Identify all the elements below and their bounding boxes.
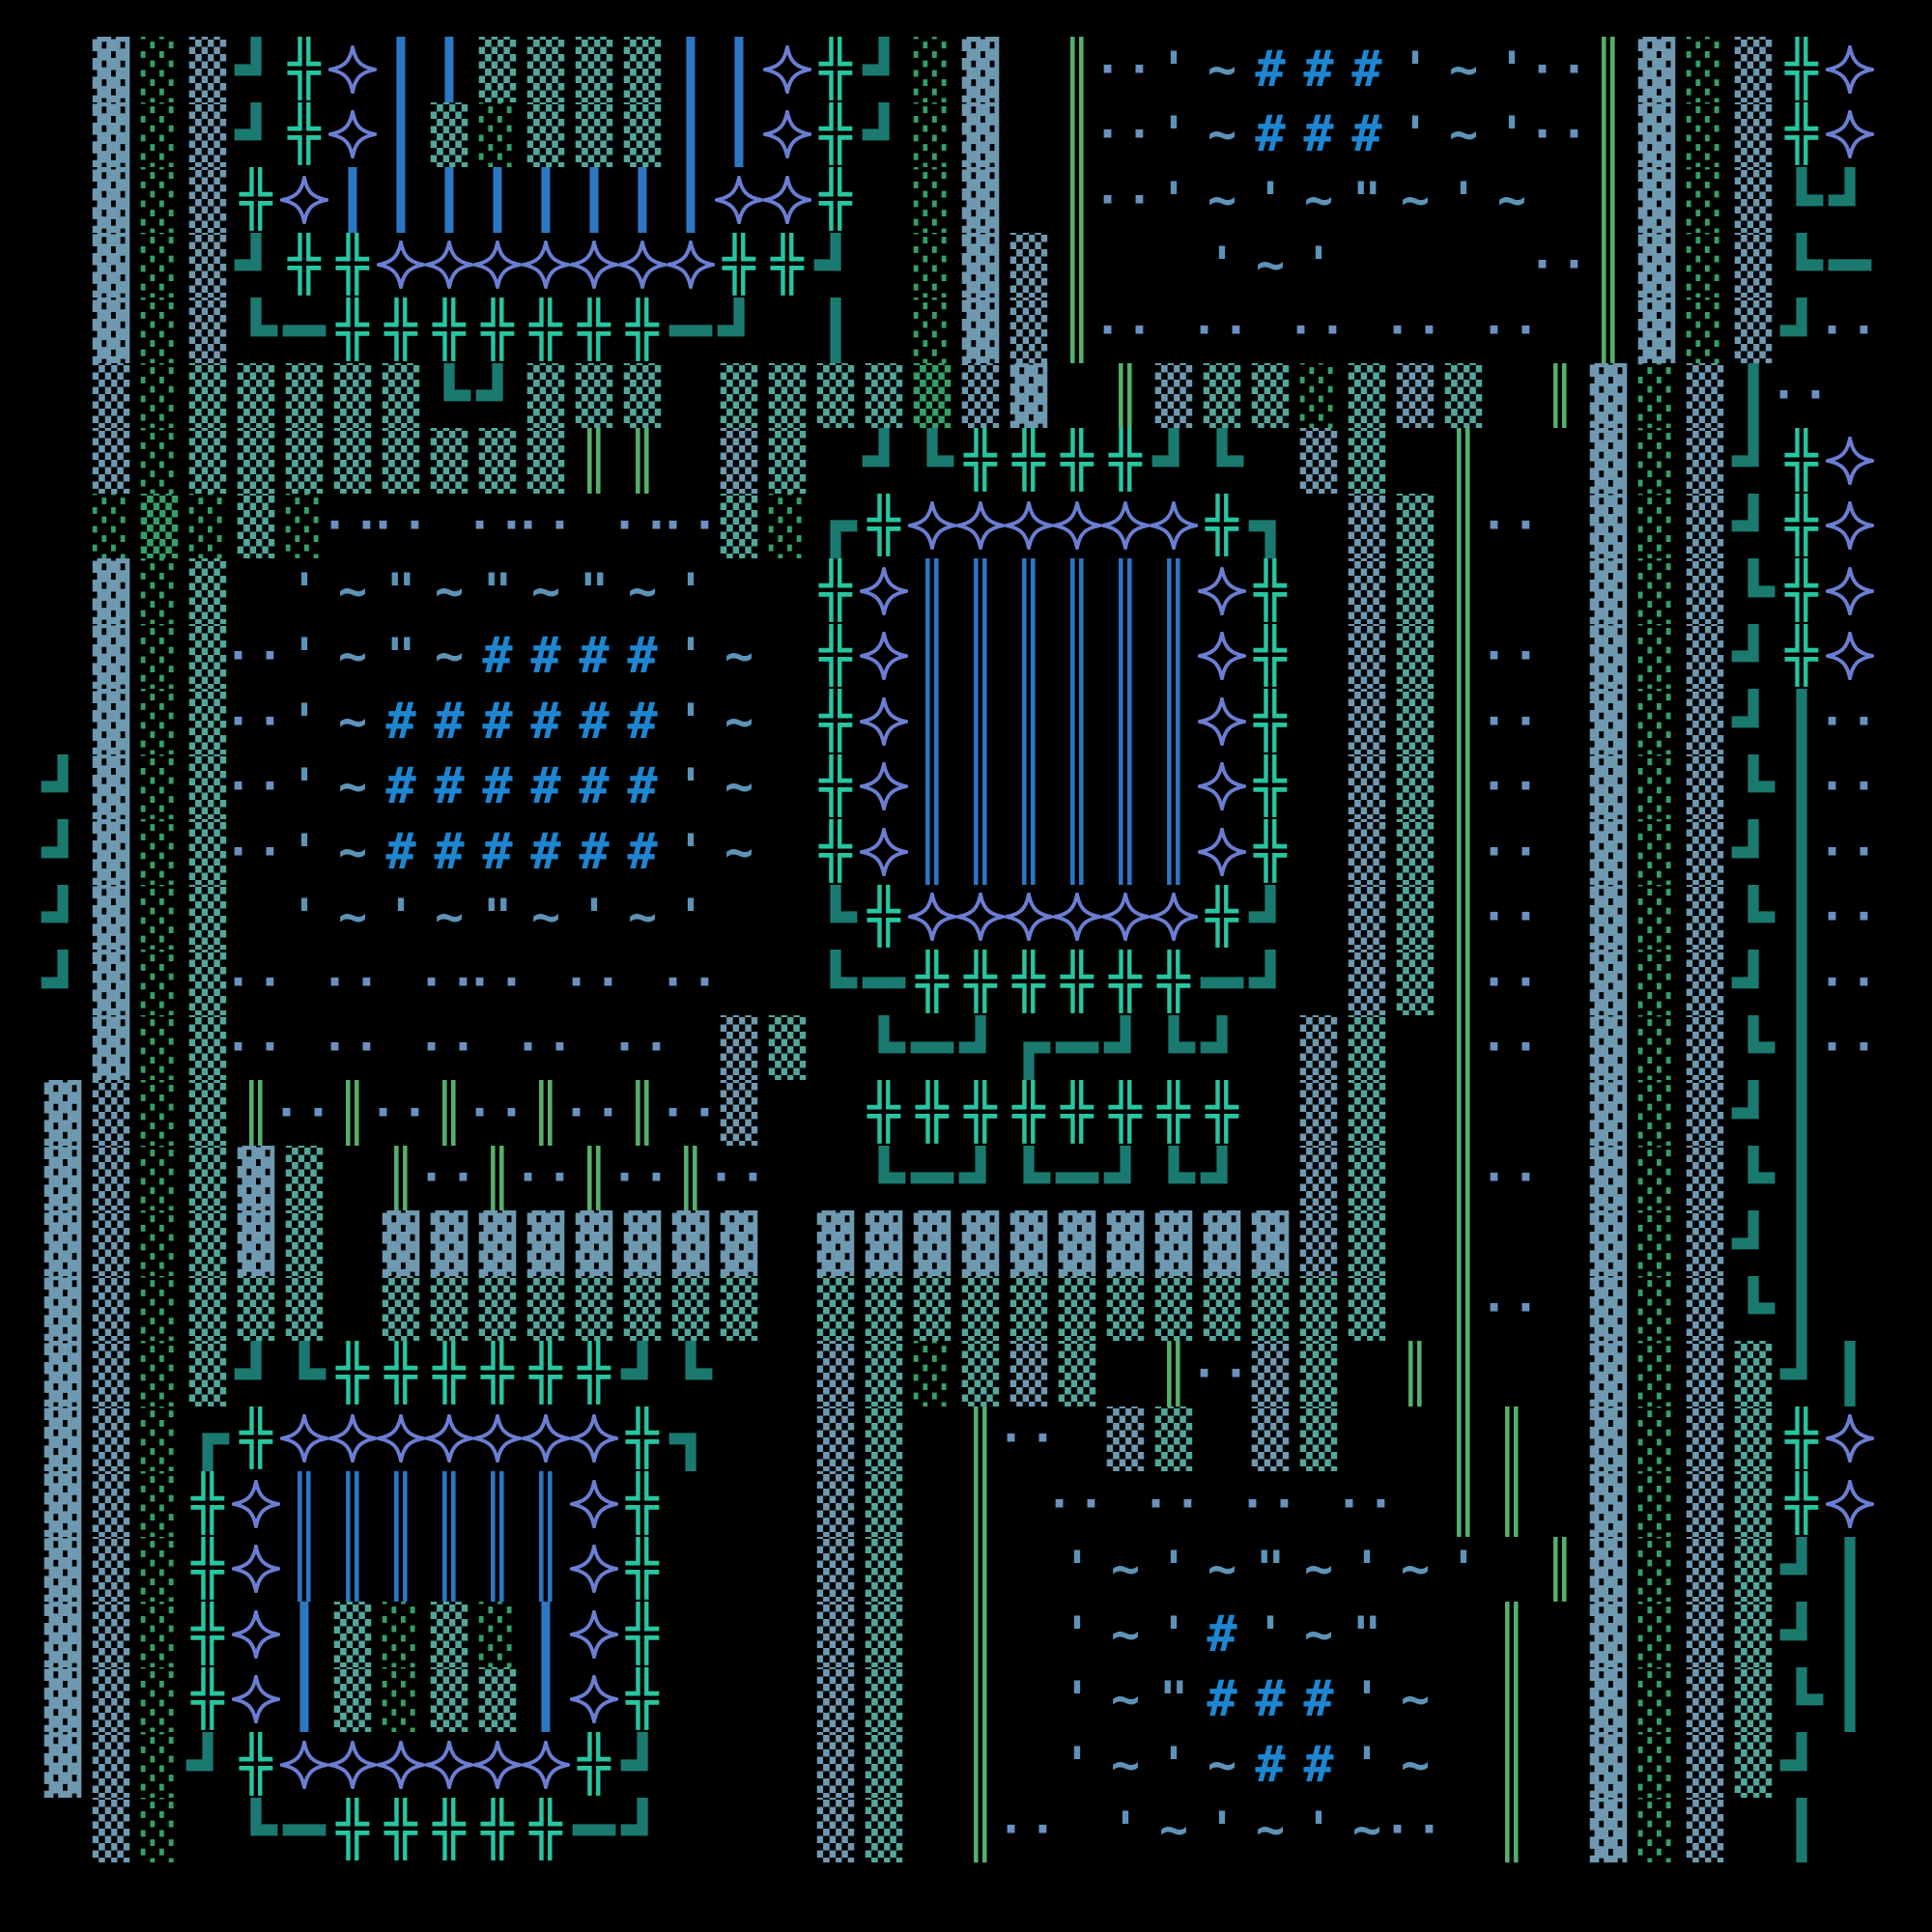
bar-blue: ┃ xyxy=(667,102,715,168)
tilde-glyph: ~ xyxy=(1198,1732,1246,1798)
apostrophe-glyph: ' xyxy=(667,885,715,951)
shade-medium-steel: ▒ xyxy=(1391,363,1439,429)
shade-medium-steel: ▒ xyxy=(1343,754,1391,820)
double-bar-green: ║ xyxy=(1101,363,1150,429)
shade-medium-teal: ▒ xyxy=(860,363,908,429)
shade-dense-steel: ▓ xyxy=(1633,37,1681,102)
cross-icon: ╬ xyxy=(618,298,667,363)
shade-medium-steel: ▒ xyxy=(1343,885,1391,951)
hash-glyph: # xyxy=(425,689,473,754)
empty-cell xyxy=(763,1210,811,1276)
double-bar-green: ║ xyxy=(522,1080,570,1146)
shade-medium-teal: ▒ xyxy=(1391,885,1439,951)
sparkle-icon xyxy=(763,37,811,102)
tilde-glyph: ~ xyxy=(1391,1537,1439,1603)
shade-dense-steel: ▓ xyxy=(570,1210,618,1276)
sparkle-icon xyxy=(473,1732,522,1798)
tilde-glyph: ~ xyxy=(522,558,570,624)
dot-pair-glyph: ·· xyxy=(425,1015,473,1081)
empty-cell xyxy=(763,1471,811,1537)
shade-medium-steel: ▒ xyxy=(1005,233,1053,298)
double-bar-blue: ║ xyxy=(522,1537,570,1603)
shade-dense-steel: ▓ xyxy=(956,1210,1005,1276)
corner-bottom-right-icon: ┛ xyxy=(618,1341,667,1406)
shade-medium-teal: ▒ xyxy=(860,1798,908,1863)
sparkle-icon xyxy=(956,885,1005,951)
cross-icon: ╬ xyxy=(1053,428,1101,494)
empty-cell xyxy=(1294,689,1343,754)
shade-medium-teal: ▒ xyxy=(860,1732,908,1798)
empty-cell xyxy=(1005,102,1053,168)
empty-cell xyxy=(1826,1732,1874,1798)
shade-medium-teal: ▒ xyxy=(1246,1276,1294,1342)
cross-icon: ╬ xyxy=(1053,1080,1101,1146)
cross-icon: ╬ xyxy=(522,1798,570,1863)
shade-medium-steel: ▒ xyxy=(87,1276,135,1342)
corner-bottom-right-icon: ┛ xyxy=(1729,1210,1777,1276)
shade-medium-teal: ▒ xyxy=(811,1276,860,1342)
apostrophe-glyph: ' xyxy=(1053,1537,1101,1603)
dot-pair-glyph: ·· xyxy=(1536,233,1584,298)
sparkle-icon xyxy=(377,1732,425,1798)
cross-icon: ╬ xyxy=(1198,1080,1246,1146)
shade-light-green: ░ xyxy=(1633,1667,1681,1733)
dot-pair-glyph: ·· xyxy=(1826,754,1874,820)
empty-cell xyxy=(328,1146,377,1211)
empty-cell xyxy=(1536,298,1584,363)
corner-bottom-right-icon: ┛ xyxy=(1729,624,1777,690)
shade-medium-teal: ▒ xyxy=(715,363,763,429)
tilde-glyph: ~ xyxy=(328,624,377,690)
shade-medium-teal: ▒ xyxy=(328,1602,377,1667)
bar-blue: ┃ xyxy=(425,37,473,102)
dot-pair-glyph: ·· xyxy=(232,819,280,885)
dot-pair-glyph: ·· xyxy=(232,950,280,1015)
shade-dense-steel: ▓ xyxy=(1584,1276,1633,1342)
double-bar-green: ║ xyxy=(1439,428,1488,494)
shade-medium-teal: ▒ xyxy=(425,1276,473,1342)
shade-medium-teal: ▒ xyxy=(1053,1341,1101,1406)
shade-dense-steel: ▓ xyxy=(1584,885,1633,951)
empty-cell xyxy=(763,689,811,754)
empty-cell xyxy=(860,233,908,298)
shade-medium-steel: ▒ xyxy=(1343,819,1391,885)
ascii-art-canvas: ▓░▒┛╬ ┃┃▒▒▒▒┃┃ ╬┛░▓║··'~###'~'··║▓░▒╬ ▓░… xyxy=(0,0,1932,1932)
sparkle-icon xyxy=(1826,37,1874,102)
dot-pair-glyph: ·· xyxy=(425,950,473,1015)
shade-medium-steel: ▒ xyxy=(1681,1406,1729,1472)
double-bar-green: ║ xyxy=(1439,1471,1488,1537)
corner-bottom-right-icon: ┛ xyxy=(39,819,87,885)
empty-cell xyxy=(1826,1210,1874,1276)
shade-dense-steel: ▓ xyxy=(1584,1406,1633,1472)
shade-medium-teal: ▒ xyxy=(715,1276,763,1342)
empty-cell xyxy=(763,1341,811,1406)
sparkle-icon xyxy=(232,1537,280,1603)
empty-cell xyxy=(1536,885,1584,951)
corner-bottom-right-icon: ┛ xyxy=(1729,494,1777,559)
corner-bottom-right-icon: ┛ xyxy=(232,37,280,102)
empty-cell xyxy=(667,428,715,494)
cross-icon: ╬ xyxy=(1777,494,1826,559)
cross-icon: ╬ xyxy=(908,1080,956,1146)
shade-dense-steel: ▓ xyxy=(87,233,135,298)
shade-medium-steel: ▒ xyxy=(1294,1210,1343,1276)
shade-medium-teal: ▒ xyxy=(1391,689,1439,754)
quote-glyph: " xyxy=(473,558,522,624)
shade-light-green: ░ xyxy=(908,37,956,102)
corner-bottom-right-icon: ┛ xyxy=(1198,1015,1246,1081)
corner-bottom-right-icon: ┛ xyxy=(232,1341,280,1406)
empty-cell xyxy=(1536,1341,1584,1406)
double-bar-blue: ║ xyxy=(1101,558,1150,624)
shade-medium-steel: ▒ xyxy=(811,1732,860,1798)
shade-medium-teal: ▒ xyxy=(956,1341,1005,1406)
shade-dense-steel: ▓ xyxy=(522,1210,570,1276)
corner-bottom-left-icon: ┗ xyxy=(1005,1146,1053,1211)
cross-icon: ╬ xyxy=(522,1341,570,1406)
corner-bottom-right-icon: ┛ xyxy=(1246,885,1294,951)
dot-pair-glyph: ·· xyxy=(280,1080,328,1146)
shade-dense-steel: ▓ xyxy=(1584,1667,1633,1733)
empty-cell xyxy=(1826,1276,1874,1342)
corner-bottom-right-icon: ┛ xyxy=(1150,428,1198,494)
empty-cell xyxy=(715,1667,763,1733)
empty-cell xyxy=(1826,363,1874,429)
empty-cell xyxy=(1391,1015,1439,1081)
empty-cell xyxy=(1198,1406,1246,1472)
sparkle-icon xyxy=(1005,494,1053,559)
shade-dense-steel: ▓ xyxy=(39,1471,87,1537)
apostrophe-glyph: ' xyxy=(1246,1602,1294,1667)
dot-pair-glyph: ·· xyxy=(473,1080,522,1146)
corner-bottom-left-icon: ┗ xyxy=(1150,1146,1198,1211)
dot-pair-glyph: ·· xyxy=(1101,298,1150,363)
sparkle-icon xyxy=(763,167,811,233)
dot-pair-glyph: ·· xyxy=(425,1146,473,1211)
corner-bottom-left-icon: ┗ xyxy=(1729,1276,1777,1342)
shade-light-green: ░ xyxy=(135,558,184,624)
sparkle-icon xyxy=(618,233,667,298)
empty-cell xyxy=(763,1732,811,1798)
cross-icon: ╬ xyxy=(1777,428,1826,494)
corner-bottom-left-icon: ┗ xyxy=(860,1146,908,1211)
line-horizontal-icon: ━ xyxy=(667,298,715,363)
shade-medium-steel: ▒ xyxy=(1681,624,1729,690)
empty-cell xyxy=(763,1406,811,1472)
line-horizontal-icon: ━ xyxy=(908,1146,956,1211)
dot-pair-glyph: ·· xyxy=(1826,950,1874,1015)
shade-light-green: ░ xyxy=(1633,1146,1681,1211)
empty-cell xyxy=(763,1667,811,1733)
double-bar-blue: ║ xyxy=(956,558,1005,624)
shade-medium-steel: ▒ xyxy=(1681,558,1729,624)
shade-light-green: ░ xyxy=(280,494,328,559)
sparkle-icon xyxy=(1826,558,1874,624)
shade-medium-teal: ▒ xyxy=(1101,1276,1150,1342)
double-bar-blue: ║ xyxy=(908,819,956,885)
shade-dense-steel: ▓ xyxy=(39,1146,87,1211)
apostrophe-glyph: ' xyxy=(1150,1732,1198,1798)
dot-pair-glyph: ·· xyxy=(232,624,280,690)
apostrophe-glyph: ' xyxy=(1343,1667,1391,1733)
hash-glyph: # xyxy=(1294,1732,1343,1798)
empty-cell xyxy=(763,1602,811,1667)
cross-icon: ╬ xyxy=(522,298,570,363)
empty-cell xyxy=(667,1667,715,1733)
hash-glyph: # xyxy=(522,689,570,754)
empty-cell xyxy=(1246,1146,1294,1211)
quote-glyph: " xyxy=(377,624,425,690)
hash-glyph: # xyxy=(618,754,667,820)
double-bar-blue: ║ xyxy=(1150,624,1198,690)
apostrophe-glyph: ' xyxy=(1294,1798,1343,1863)
empty-cell xyxy=(1536,1406,1584,1472)
empty-cell xyxy=(39,167,87,233)
apostrophe-glyph: ' xyxy=(1391,37,1439,102)
tilde-glyph: ~ xyxy=(1101,1537,1150,1603)
cross-icon: ╬ xyxy=(328,1798,377,1863)
empty-cell xyxy=(1488,1537,1536,1603)
double-bar-blue: ║ xyxy=(1005,558,1053,624)
shade-light-green: ░ xyxy=(377,1667,425,1733)
empty-cell xyxy=(39,37,87,102)
shade-medium-teal: ▒ xyxy=(1294,1406,1343,1472)
empty-cell xyxy=(1005,37,1053,102)
shade-dense-steel: ▓ xyxy=(87,102,135,168)
shade-light-green: ░ xyxy=(135,1537,184,1603)
cross-icon: ╬ xyxy=(1246,689,1294,754)
bar-dark-teal: ┃ xyxy=(1777,1015,1826,1081)
shade-medium-teal: ▒ xyxy=(618,37,667,102)
shade-medium-steel: ▒ xyxy=(87,1732,135,1798)
shade-medium-steel: ▒ xyxy=(811,1406,860,1472)
shade-light-green: ░ xyxy=(135,1667,184,1733)
double-bar-blue: ║ xyxy=(1005,624,1053,690)
double-bar-blue: ║ xyxy=(473,1537,522,1603)
empty-cell xyxy=(1536,819,1584,885)
shade-medium-steel: ▒ xyxy=(87,1080,135,1146)
corner-bottom-right-icon: ┛ xyxy=(860,37,908,102)
shade-light-green: ░ xyxy=(763,494,811,559)
apostrophe-glyph: ' xyxy=(570,885,618,951)
hash-glyph: # xyxy=(618,689,667,754)
shade-medium-teal: ▒ xyxy=(1246,363,1294,429)
sparkle-icon xyxy=(232,1602,280,1667)
corner-bottom-left-icon: ┗ xyxy=(232,298,280,363)
double-bar-blue: ║ xyxy=(377,1537,425,1603)
shade-medium-steel: ▒ xyxy=(1681,1732,1729,1798)
cross-icon: ╬ xyxy=(1005,1080,1053,1146)
tilde-glyph: ~ xyxy=(618,558,667,624)
cross-icon: ╬ xyxy=(715,233,763,298)
empty-cell xyxy=(1439,298,1488,363)
shade-light-green: ░ xyxy=(1681,37,1729,102)
shade-medium-teal: ▒ xyxy=(328,363,377,429)
shade-medium-steel: ▒ xyxy=(184,37,232,102)
shade-light-green: ░ xyxy=(135,233,184,298)
corner-bottom-right-icon: ┛ xyxy=(39,950,87,1015)
sparkle-icon xyxy=(1826,1406,1874,1472)
shade-medium-steel: ▒ xyxy=(87,1537,135,1603)
dot-pair-glyph: ·· xyxy=(1826,1015,1874,1081)
hash-glyph: # xyxy=(377,754,425,820)
bar-dark-teal: ┃ xyxy=(811,298,860,363)
dot-pair-glyph: ·· xyxy=(1488,298,1536,363)
tilde-glyph: ~ xyxy=(328,754,377,820)
shade-light-green: ░ xyxy=(135,1471,184,1537)
shade-light-green: ░ xyxy=(908,233,956,298)
shade-dense-steel: ▓ xyxy=(1584,428,1633,494)
sparkle-icon xyxy=(570,1537,618,1603)
empty-cell xyxy=(811,1080,860,1146)
empty-cell xyxy=(1439,233,1488,298)
shade-dense-steel: ▓ xyxy=(87,885,135,951)
shade-light-green: ░ xyxy=(1681,102,1729,168)
shade-medium-teal: ▒ xyxy=(232,363,280,429)
shade-medium-teal: ▒ xyxy=(1391,819,1439,885)
shade-dense-steel: ▓ xyxy=(87,37,135,102)
shade-medium-steel: ▒ xyxy=(1343,689,1391,754)
empty-cell xyxy=(1391,1602,1439,1667)
dot-pair-glyph: ·· xyxy=(1246,1471,1294,1537)
shade-medium-teal: ▒ xyxy=(570,102,618,168)
dot-pair-glyph: ·· xyxy=(328,1015,377,1081)
double-bar-blue: ║ xyxy=(1150,754,1198,820)
dot-pair-glyph: ·· xyxy=(1536,37,1584,102)
cross-icon: ╬ xyxy=(232,1732,280,1798)
shade-dense-steel: ▓ xyxy=(1584,1537,1633,1603)
double-bar-blue: ║ xyxy=(522,1471,570,1537)
double-bar-green: ║ xyxy=(667,1146,715,1211)
dot-pair-glyph: ·· xyxy=(1150,1471,1198,1537)
tilde-glyph: ~ xyxy=(715,624,763,690)
quote-glyph: " xyxy=(570,558,618,624)
shade-medium-teal: ▒ xyxy=(1439,363,1488,429)
shade-medium-teal: ▒ xyxy=(1198,363,1246,429)
empty-cell xyxy=(763,624,811,690)
sparkle-icon xyxy=(860,624,908,690)
double-bar-green: ║ xyxy=(1488,1602,1536,1667)
corner-bottom-right-icon: ┛ xyxy=(1777,1341,1826,1406)
double-bar-blue: ║ xyxy=(956,819,1005,885)
empty-cell xyxy=(1246,1015,1294,1081)
shade-medium-steel: ▒ xyxy=(1681,1341,1729,1406)
apostrophe-glyph: ' xyxy=(280,558,328,624)
corner-bottom-right-icon: ┛ xyxy=(1246,950,1294,1015)
empty-cell xyxy=(1536,167,1584,233)
empty-cell xyxy=(1294,754,1343,820)
shade-light-green: ░ xyxy=(135,624,184,690)
tilde-glyph: ~ xyxy=(1343,1798,1391,1863)
dot-pair-glyph: ·· xyxy=(1488,494,1536,559)
empty-cell xyxy=(667,1015,715,1081)
tilde-glyph: ~ xyxy=(328,558,377,624)
shade-dense-steel: ▓ xyxy=(1005,363,1053,429)
shade-dense-steel: ▓ xyxy=(1005,1210,1053,1276)
hash-glyph: # xyxy=(473,689,522,754)
shade-medium-teal: ▒ xyxy=(280,1276,328,1342)
dot-pair-glyph: ·· xyxy=(377,1080,425,1146)
empty-cell xyxy=(280,950,328,1015)
double-bar-green: ║ xyxy=(232,1080,280,1146)
hash-glyph: # xyxy=(1294,37,1343,102)
empty-cell xyxy=(1536,1732,1584,1798)
double-bar-blue: ║ xyxy=(956,754,1005,820)
empty-cell xyxy=(1343,1341,1391,1406)
empty-cell xyxy=(811,428,860,494)
cross-icon: ╬ xyxy=(811,754,860,820)
shade-dense-steel: ▓ xyxy=(39,1732,87,1798)
shade-medium-teal: ▒ xyxy=(184,624,232,690)
shade-dense-steel: ▓ xyxy=(232,1210,280,1276)
bar-dark-teal: ┃ xyxy=(1826,1602,1874,1667)
shade-medium-steel: ▒ xyxy=(87,1798,135,1863)
bar-blue: ┃ xyxy=(377,102,425,168)
apostrophe-glyph: ' xyxy=(1053,1732,1101,1798)
bar-dark-teal: ┃ xyxy=(1777,1210,1826,1276)
empty-cell xyxy=(1488,233,1536,298)
apostrophe-glyph: ' xyxy=(1150,102,1198,168)
apostrophe-glyph: ' xyxy=(1439,1537,1488,1603)
empty-cell xyxy=(1488,1080,1536,1146)
double-bar-green: ║ xyxy=(1488,1406,1536,1472)
shade-medium-teal: ▒ xyxy=(763,428,811,494)
shade-medium-teal: ▒ xyxy=(763,1015,811,1081)
hash-glyph: # xyxy=(473,819,522,885)
dot-pair-glyph: ·· xyxy=(1391,298,1439,363)
shade-medium-teal: ▒ xyxy=(1729,1667,1777,1733)
sparkle-icon xyxy=(1826,494,1874,559)
shade-medium-teal: ▒ xyxy=(1343,1276,1391,1342)
bar-dark-teal: ┃ xyxy=(1826,1667,1874,1733)
cross-icon: ╬ xyxy=(377,1341,425,1406)
empty-cell xyxy=(1198,1471,1246,1537)
empty-cell xyxy=(908,1406,956,1472)
shade-dense-steel: ▓ xyxy=(87,689,135,754)
shade-medium-steel: ▒ xyxy=(1681,1471,1729,1537)
quote-glyph: " xyxy=(1343,1602,1391,1667)
shade-light-green: ░ xyxy=(1633,819,1681,885)
shade-medium-steel: ▒ xyxy=(1681,494,1729,559)
shade-medium-teal: ▒ xyxy=(473,37,522,102)
tilde-glyph: ~ xyxy=(618,885,667,951)
dot-pair-glyph: ·· xyxy=(1053,1471,1101,1537)
empty-cell xyxy=(1053,1406,1101,1472)
double-bar-green: ║ xyxy=(618,1080,667,1146)
tilde-glyph: ~ xyxy=(1150,1798,1198,1863)
shade-medium-steel: ▒ xyxy=(87,1341,135,1406)
cross-icon: ╬ xyxy=(1101,950,1150,1015)
double-bar-blue: ║ xyxy=(425,1471,473,1537)
empty-cell xyxy=(763,885,811,951)
shade-dense-steel: ▓ xyxy=(956,298,1005,363)
double-bar-blue: ║ xyxy=(328,1537,377,1603)
bar-dark-teal: ┃ xyxy=(1777,950,1826,1015)
double-bar-green: ║ xyxy=(1439,689,1488,754)
double-bar-blue: ║ xyxy=(1053,689,1101,754)
shade-medium-teal: ▒ xyxy=(1053,1276,1101,1342)
shade-light-green: ░ xyxy=(473,1602,522,1667)
empty-cell xyxy=(1826,1146,1874,1211)
shade-light-green: ░ xyxy=(135,1406,184,1472)
double-bar-blue: ║ xyxy=(1101,819,1150,885)
double-bar-green: ║ xyxy=(1439,558,1488,624)
shade-dense-steel: ▓ xyxy=(39,1406,87,1472)
apostrophe-glyph: ' xyxy=(1488,37,1536,102)
double-bar-green: ║ xyxy=(956,1406,1005,1472)
shade-dense-steel: ▓ xyxy=(1633,102,1681,168)
